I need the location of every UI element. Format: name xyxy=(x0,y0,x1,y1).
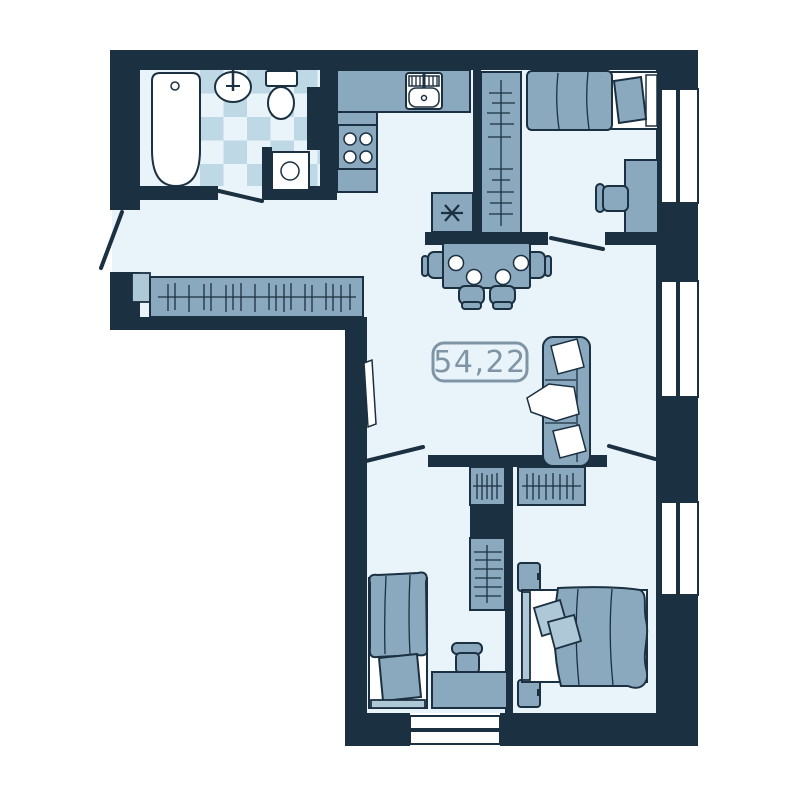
wall-bath-pocket xyxy=(307,87,337,150)
nightstand-icon-bottom xyxy=(518,680,541,707)
floor-plan: 54,22 xyxy=(0,0,800,800)
washing-machine-icon xyxy=(272,152,309,190)
sofa-pillow-bottom xyxy=(553,425,586,458)
wall-bath-bottom-left xyxy=(110,186,218,200)
bed-icon-top xyxy=(527,71,658,130)
stove-icon xyxy=(338,125,377,169)
wall-hall-bottom xyxy=(110,317,367,330)
desk-icon-top xyxy=(625,160,658,233)
sofa-pillow-top xyxy=(551,339,584,374)
bathtub-drain xyxy=(171,82,179,90)
bed-icon-bottom-left xyxy=(369,573,427,708)
plate-icon xyxy=(467,270,482,285)
hall-cabinet xyxy=(132,273,150,302)
desk-icon-bottom-left xyxy=(432,672,507,708)
window-right-top xyxy=(661,89,698,203)
wall-washer-niche xyxy=(262,147,272,190)
plate-icon xyxy=(449,256,464,271)
window-right-middle xyxy=(661,281,698,397)
wall-top xyxy=(110,50,698,70)
wardrobe-icon-left-top xyxy=(470,467,505,505)
kitchen-sink-icon xyxy=(406,73,442,109)
wall-divider-block xyxy=(470,505,513,538)
plate-icon xyxy=(496,270,511,285)
nightstand-icon-top xyxy=(518,563,541,591)
chair-icon-top-bedroom xyxy=(596,184,628,212)
wardrobe-icon-left-side xyxy=(470,538,505,610)
wardrobe-icon-hallway xyxy=(132,273,363,317)
wardrobe-icon-bedroom-top xyxy=(481,72,521,233)
area-label-text: 54,22 xyxy=(433,345,526,380)
window-bottom xyxy=(410,716,500,744)
area-label: 54,22 xyxy=(433,343,527,381)
wall-bottom-right xyxy=(500,713,698,746)
chair-icon-dining-bottom-2 xyxy=(490,286,515,309)
kitchen-counter-icon xyxy=(337,70,470,112)
wall-bottom-left xyxy=(345,713,410,746)
floor-plan-page: 54,22 xyxy=(0,0,800,800)
wall-left-lower-section xyxy=(345,317,367,746)
double-bed-icon xyxy=(522,587,647,688)
wardrobe-icon-right xyxy=(518,467,585,505)
toilet-icon xyxy=(266,71,297,119)
wall-kitchen-wardrobe xyxy=(473,70,481,232)
plate-icon xyxy=(514,256,529,271)
chair-icon-bottom-left xyxy=(452,643,482,673)
fridge-icon xyxy=(432,193,473,232)
window-right-bottom xyxy=(661,502,698,595)
chair-icon-dining-bottom-1 xyxy=(459,286,484,309)
